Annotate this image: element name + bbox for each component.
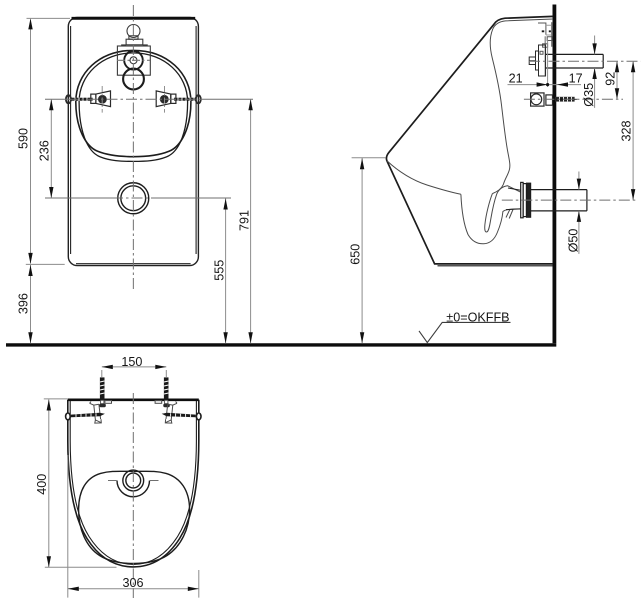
- svg-text:590: 590: [16, 128, 30, 149]
- svg-text:650: 650: [349, 244, 363, 265]
- svg-text:791: 791: [237, 210, 251, 231]
- svg-text:92: 92: [604, 72, 618, 86]
- svg-text:Ø35: Ø35: [582, 83, 596, 107]
- svg-text:306: 306: [122, 576, 143, 590]
- svg-text:150: 150: [121, 355, 142, 369]
- svg-text:396: 396: [16, 293, 30, 314]
- svg-text:236: 236: [38, 140, 52, 161]
- svg-text:17: 17: [569, 71, 583, 85]
- svg-text:328: 328: [620, 120, 634, 141]
- svg-text:Ø50: Ø50: [566, 229, 580, 253]
- svg-text:400: 400: [35, 474, 49, 495]
- svg-text:21: 21: [509, 71, 523, 85]
- svg-text:±0=OKFFB: ±0=OKFFB: [446, 310, 509, 324]
- svg-text:555: 555: [212, 260, 226, 281]
